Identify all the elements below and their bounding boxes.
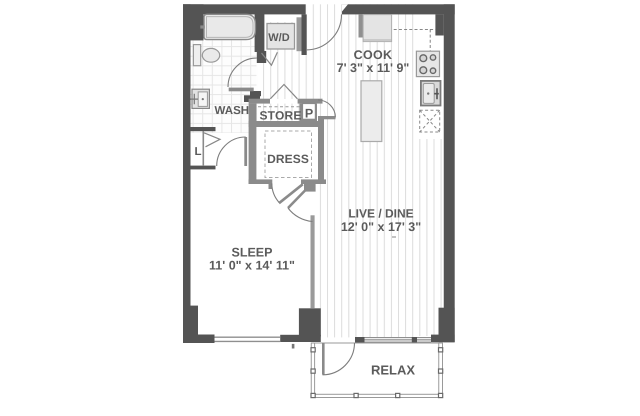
svg-text:12' 0" x 17' 3": 12' 0" x 17' 3" [341, 220, 421, 234]
svg-text:DRESS: DRESS [267, 152, 309, 166]
svg-text:RELAX: RELAX [371, 363, 415, 378]
svg-text:11' 0" x 14' 11": 11' 0" x 14' 11" [209, 259, 295, 273]
svg-text:P: P [305, 107, 313, 121]
svg-text:WASH: WASH [215, 105, 250, 117]
svg-text:STORE: STORE [259, 108, 301, 122]
svg-text:7' 3" x 11' 9": 7' 3" x 11' 9" [337, 61, 410, 75]
svg-text:W/D: W/D [268, 32, 289, 44]
svg-text:L: L [194, 146, 201, 158]
svg-text:COOK: COOK [354, 48, 393, 62]
svg-text:SLEEP: SLEEP [232, 246, 273, 260]
svg-text:LIVE / DINE: LIVE / DINE [348, 206, 413, 220]
